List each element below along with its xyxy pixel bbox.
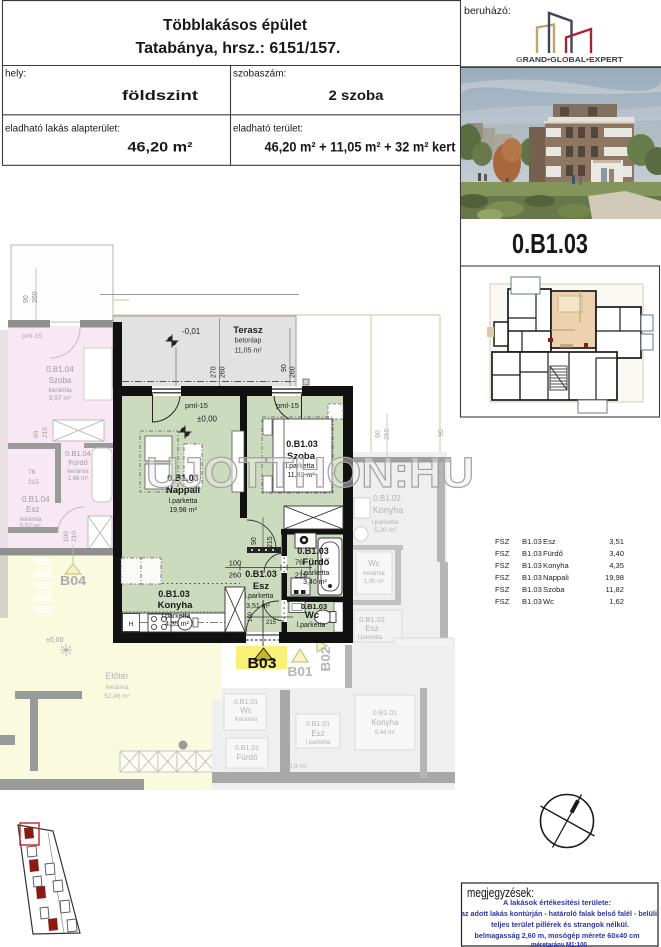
svg-text:Kerámia: Kerámia — [235, 717, 258, 723]
svg-text:kerámia: kerámia — [363, 571, 385, 577]
svg-text:260: 260 — [384, 428, 391, 440]
svg-text:Wc: Wc — [543, 597, 554, 606]
svg-text:Wc: Wc — [368, 559, 380, 568]
svg-text:2 szoba: 2 szoba — [329, 87, 384, 103]
svg-text:FSZ: FSZ — [495, 573, 510, 582]
svg-text:0.B1.03: 0.B1.03 — [512, 228, 588, 259]
svg-text:Terasz: Terasz — [233, 325, 263, 336]
svg-text:0.B1.01: 0.B1.01 — [234, 699, 258, 706]
svg-text:UJOTTHON:HU: UJOTTHON:HU — [146, 449, 474, 497]
svg-text:l.parketta: l.parketta — [169, 498, 198, 505]
svg-text:Fürdő: Fürdő — [68, 458, 88, 467]
svg-text:pml-15: pml-15 — [276, 401, 299, 410]
svg-text:FSZ: FSZ — [495, 561, 510, 570]
svg-text:210: 210 — [71, 531, 78, 542]
svg-text:215: 215 — [267, 536, 274, 548]
svg-text:belmagasság 2,60 m, mosógép m: belmagasság 2,60 m, mosógép mérete 60x40… — [475, 931, 640, 940]
svg-text:l.parketta: l.parketta — [306, 740, 331, 746]
svg-text:0.B1.03: 0.B1.03 — [245, 569, 277, 579]
svg-text:78,3 m²: 78,3 m² — [285, 763, 308, 770]
svg-text:Előtér: Előtér — [105, 671, 129, 681]
svg-text:52,46 m²: 52,46 m² — [104, 693, 130, 700]
svg-text:215: 215 — [42, 427, 49, 438]
svg-text:0.B1.03: 0.B1.03 — [286, 439, 318, 449]
svg-text:260: 260 — [32, 291, 39, 303]
svg-text:Konyha: Konyha — [371, 718, 399, 727]
svg-text:Fürdő: Fürdő — [303, 557, 330, 568]
svg-text:B1.03: B1.03 — [522, 537, 542, 546]
svg-text:4,35 m²: 4,35 m² — [165, 621, 189, 628]
svg-text:pml-15: pml-15 — [22, 333, 42, 340]
svg-text:90: 90 — [23, 295, 30, 303]
svg-text:GRAND•GLOBAL•EXPERT: GRAND•GLOBAL•EXPERT — [516, 57, 624, 64]
svg-text:0.B1.01: 0.B1.01 — [373, 710, 397, 717]
svg-text:pml-15: pml-15 — [185, 401, 208, 410]
svg-text:0.B1.01: 0.B1.01 — [306, 721, 330, 728]
svg-text:0.B1.04: 0.B1.04 — [65, 449, 91, 458]
svg-text:Szoba: Szoba — [543, 585, 565, 594]
svg-text:90: 90 — [375, 430, 382, 438]
svg-text:Konyha: Konyha — [373, 505, 404, 515]
svg-text:l.parketta: l.parketta — [297, 622, 326, 629]
svg-text:kerámia: kerámia — [105, 684, 129, 691]
svg-text:1,62: 1,62 — [609, 597, 624, 606]
svg-text:Esz: Esz — [26, 505, 39, 514]
svg-text:l.parketta: l.parketta — [162, 613, 191, 620]
svg-text:260: 260 — [290, 366, 297, 378]
svg-text:5,57 m²: 5,57 m² — [20, 524, 40, 530]
svg-text:100: 100 — [248, 611, 254, 622]
svg-text:B03: B03 — [248, 656, 277, 672]
svg-text:szobaszám:: szobaszám: — [233, 69, 286, 80]
svg-text:Konyha: Konyha — [158, 600, 194, 611]
svg-text:9,57 m²: 9,57 m² — [49, 395, 72, 402]
svg-text:3,40: 3,40 — [609, 549, 624, 558]
svg-text:l.parketta: l.parketta — [301, 570, 330, 577]
svg-text:Tatabánya, hrsz.: 6151/157.: Tatabánya, hrsz.: 6151/157. — [136, 40, 341, 57]
svg-text:B1.03: B1.03 — [522, 561, 542, 570]
svg-text:3,51: 3,51 — [609, 537, 624, 546]
svg-text:11,05 m²: 11,05 m² — [234, 348, 262, 355]
svg-text:B04: B04 — [60, 573, 87, 588]
svg-text:-0,01: -0,01 — [182, 327, 201, 336]
svg-text:Esz: Esz — [311, 729, 324, 738]
svg-text:0.B1.04: 0.B1.04 — [22, 495, 50, 504]
svg-text:A lakások értékesítési terület: A lakások értékesítési területe: — [503, 898, 611, 907]
svg-text:90: 90 — [33, 430, 40, 438]
svg-text:±0,00: ±0,00 — [46, 637, 64, 644]
svg-text:3,40 m²: 3,40 m² — [303, 579, 327, 586]
svg-text:100: 100 — [229, 559, 242, 568]
svg-text:kerámia: kerámia — [20, 517, 42, 523]
svg-text:260: 260 — [229, 571, 242, 580]
svg-text:0.B1.03: 0.B1.03 — [297, 546, 329, 556]
svg-text:260: 260 — [220, 366, 227, 378]
svg-text:Wc: Wc — [305, 610, 319, 621]
svg-text:kerámia: kerámia — [48, 387, 72, 394]
svg-text:1,66 m²: 1,66 m² — [68, 476, 88, 482]
svg-text:Wc: Wc — [240, 706, 252, 715]
svg-text:19,98: 19,98 — [605, 573, 624, 582]
svg-text:Többlakásos épület: Többlakásos épület — [163, 17, 307, 34]
svg-text:FSZ: FSZ — [495, 537, 510, 546]
svg-text:215: 215 — [266, 620, 277, 626]
svg-text:l.parketta: l.parketta — [358, 635, 383, 641]
svg-text:betonlap: betonlap — [235, 338, 262, 345]
svg-text:5,44 m²: 5,44 m² — [375, 730, 395, 736]
svg-text:beruházó:: beruházó: — [464, 5, 511, 17]
svg-text:kerámia: kerámia — [67, 469, 89, 475]
svg-text:46,20 m²: 46,20 m² — [128, 139, 193, 155]
svg-text:270: 270 — [211, 366, 218, 378]
svg-text:5,20 m²: 5,20 m² — [374, 527, 397, 534]
svg-text:B1.03: B1.03 — [522, 597, 542, 606]
svg-text:l.parketta: l.parketta — [372, 519, 399, 526]
svg-text:11,82: 11,82 — [606, 585, 624, 594]
svg-text:FSZ: FSZ — [495, 549, 510, 558]
svg-text:0.B1.01: 0.B1.01 — [235, 745, 259, 752]
svg-text:0.B1.03: 0.B1.03 — [158, 589, 190, 599]
svg-text:4,35: 4,35 — [609, 561, 624, 570]
svg-text:90: 90 — [438, 429, 445, 437]
svg-text:Konyha: Konyha — [543, 561, 570, 570]
svg-text:földszint: földszint — [122, 87, 198, 103]
svg-text:FSZ: FSZ — [495, 597, 510, 606]
svg-text:B1.03: B1.03 — [522, 585, 542, 594]
svg-text:Nappali: Nappali — [543, 573, 569, 582]
svg-text:eladható terület:: eladható terület: — [233, 124, 303, 135]
svg-text:eladható lakás alapterület:: eladható lakás alapterület: — [5, 124, 120, 135]
svg-text:3,51 m²: 3,51 m² — [246, 603, 270, 610]
svg-text:B1.03: B1.03 — [522, 549, 542, 558]
svg-text:H: H — [129, 621, 134, 628]
svg-text:76: 76 — [28, 469, 36, 476]
svg-text:l.parketta: l.parketta — [245, 593, 274, 600]
svg-text:46,20 m² + 11,05 m² + 32 m² ke: 46,20 m² + 11,05 m² + 32 m² kert — [265, 139, 456, 155]
svg-text:B01: B01 — [288, 665, 313, 679]
svg-text:hely:: hely: — [5, 69, 26, 80]
svg-text:Esz: Esz — [365, 624, 378, 633]
svg-text:0.B1.02: 0.B1.02 — [359, 615, 385, 624]
svg-text:teljes terület pillérek és str: teljes terület pillérek és strangok nélk… — [491, 920, 629, 929]
svg-text:az adott lakás kontúrján - hat: az adott lakás kontúrján - határoló fala… — [461, 909, 657, 918]
svg-text:Esz: Esz — [253, 581, 270, 592]
svg-text:Fürdő: Fürdő — [237, 753, 258, 762]
svg-text:B1.03: B1.03 — [522, 573, 542, 582]
svg-text:Szoba: Szoba — [49, 376, 72, 385]
svg-text:100: 100 — [63, 531, 70, 542]
svg-text:90: 90 — [251, 537, 258, 545]
svg-text:0.B1.04: 0.B1.04 — [46, 365, 74, 374]
svg-text:90: 90 — [281, 364, 288, 372]
svg-text:méretarány M1:100: méretarány M1:100 — [531, 940, 587, 947]
svg-text:FSZ: FSZ — [495, 585, 510, 594]
svg-text:19,98 m²: 19,98 m² — [169, 507, 197, 514]
svg-text:1,80 m²: 1,80 m² — [364, 579, 384, 585]
svg-text:215: 215 — [28, 479, 39, 486]
svg-text:Fürdő: Fürdő — [543, 549, 563, 558]
svg-text:B02: B02 — [319, 646, 333, 671]
svg-text:±0,00: ±0,00 — [197, 415, 218, 424]
svg-text:Esz: Esz — [543, 537, 556, 546]
